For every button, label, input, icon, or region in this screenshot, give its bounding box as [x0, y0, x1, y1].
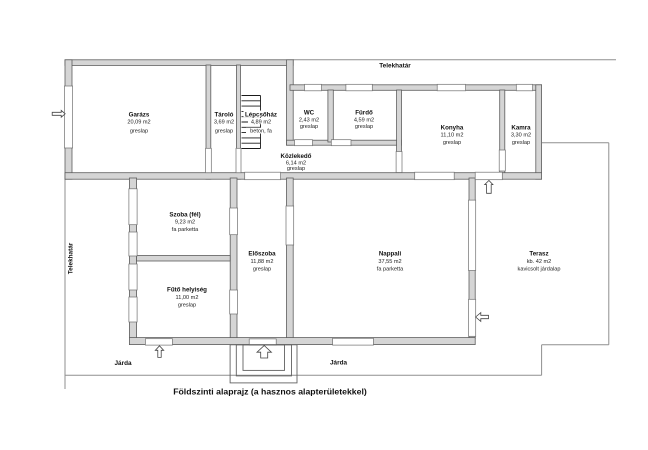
svg-text:fa parketta: fa parketta [377, 267, 404, 273]
svg-text:greslap: greslap [287, 166, 305, 172]
svg-text:37,55 m2: 37,55 m2 [378, 259, 401, 265]
svg-text:4,59 m2: 4,59 m2 [354, 118, 374, 124]
svg-text:Garázs: Garázs [129, 112, 150, 119]
svg-text:11,00 m2: 11,00 m2 [176, 295, 199, 301]
svg-text:Nappali: Nappali [379, 251, 402, 258]
svg-text:Tároló: Tároló [215, 112, 234, 119]
svg-text:greslap: greslap [215, 129, 233, 135]
svg-text:Fűtő helyiség: Fűtő helyiség [167, 287, 207, 294]
svg-text:greslap: greslap [178, 303, 196, 309]
svg-text:Járda: Járda [330, 360, 347, 367]
svg-text:Kamra: Kamra [511, 125, 531, 132]
svg-text:Járda: Járda [114, 360, 131, 367]
svg-text:9,23 m2: 9,23 m2 [175, 220, 195, 226]
svg-text:Lépcsőház: Lépcsőház [245, 112, 277, 119]
svg-text:Szoba (fél): Szoba (fél) [169, 212, 200, 219]
svg-text:Konyha: Konyha [441, 125, 464, 132]
svg-text:3,30 m2: 3,30 m2 [511, 133, 531, 139]
svg-text:WC: WC [304, 110, 315, 117]
svg-text:Terasz: Terasz [529, 251, 548, 258]
svg-text:3,69 m2: 3,69 m2 [214, 120, 234, 126]
svg-text:greslap: greslap [300, 124, 318, 130]
svg-text:greslap: greslap [355, 124, 373, 130]
svg-text:Fürdő: Fürdő [355, 110, 373, 117]
svg-text:greslap: greslap [130, 129, 148, 135]
svg-text:Előszoba: Előszoba [248, 251, 276, 258]
svg-text:11,88 m2: 11,88 m2 [251, 259, 274, 265]
svg-text:Telekhatár: Telekhatár [68, 242, 75, 274]
svg-text:Telekhatár: Telekhatár [379, 63, 411, 70]
svg-text:Földszinti alaprajz (a hasznos: Földszinti alaprajz (a hasznos alapterül… [173, 387, 367, 397]
svg-text:20,09 m2: 20,09 m2 [127, 120, 150, 126]
svg-text:greslap: greslap [253, 267, 271, 273]
svg-text:4,89 m2: 4,89 m2 [251, 120, 271, 126]
svg-text:fa parketta: fa parketta [172, 227, 199, 233]
svg-text:greslap: greslap [512, 140, 530, 146]
svg-text:Közlekedő: Közlekedő [281, 153, 312, 160]
svg-text:2,43 m2: 2,43 m2 [299, 118, 319, 124]
svg-text:greslap: greslap [443, 140, 461, 146]
svg-text:kb. 42 m2: kb. 42 m2 [527, 259, 552, 265]
svg-text:beton, fa: beton, fa [250, 129, 273, 135]
svg-text:kavicsolt járdalap: kavicsolt járdalap [518, 267, 561, 273]
svg-text:11,10 m2: 11,10 m2 [441, 133, 464, 139]
